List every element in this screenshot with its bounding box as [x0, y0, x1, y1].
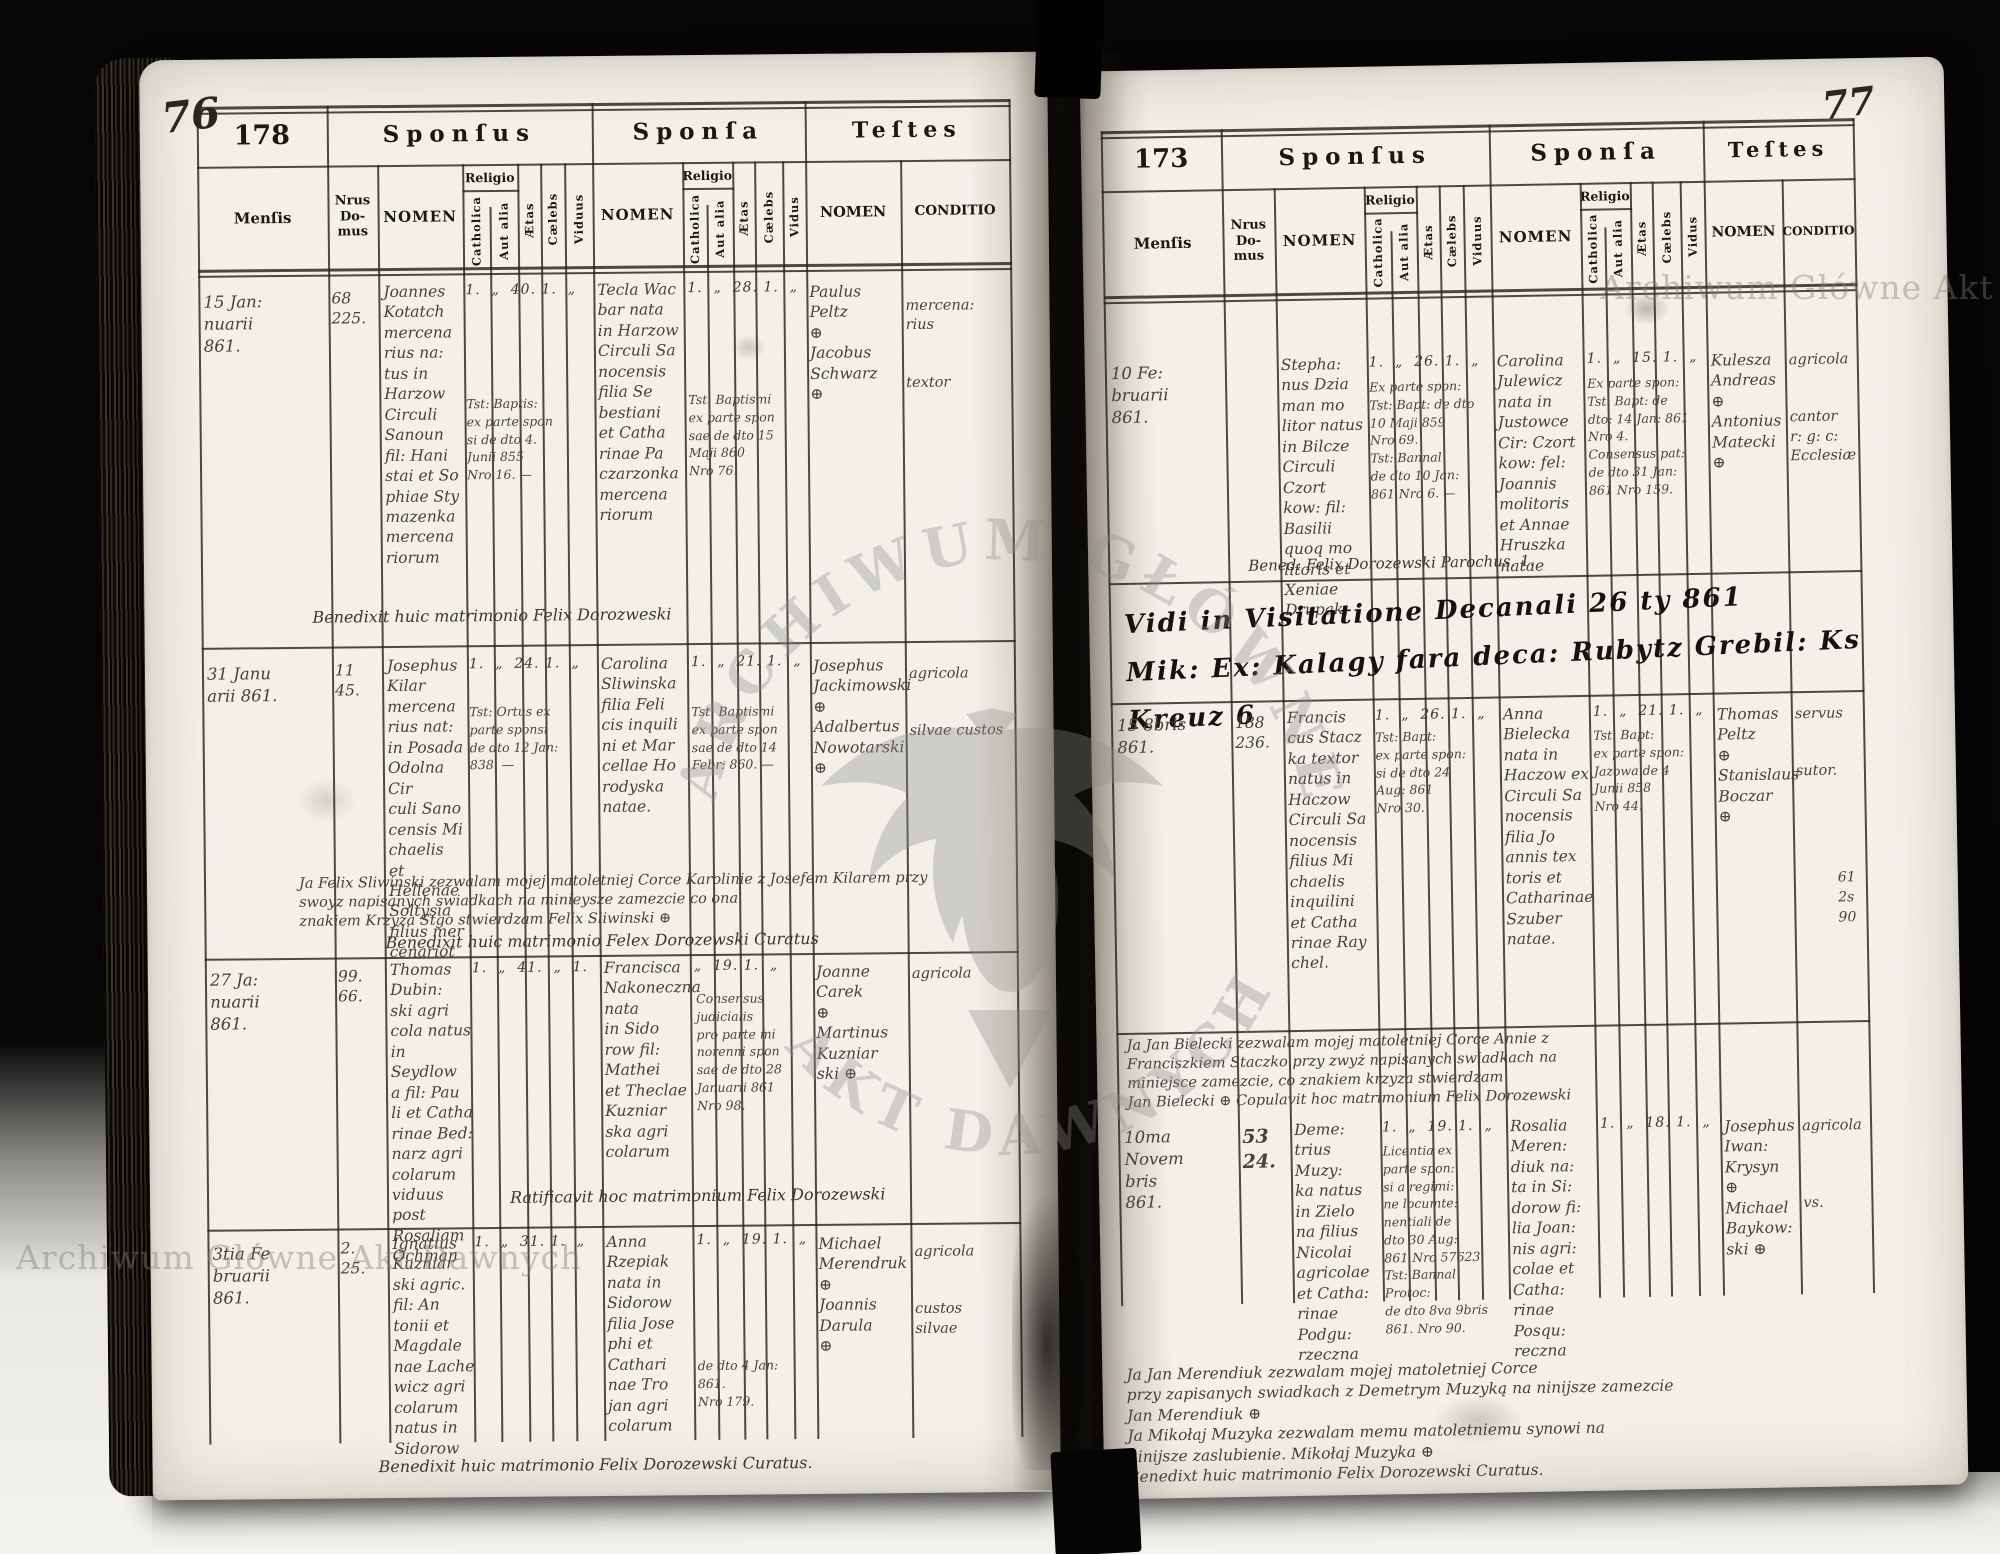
entry-mensis: 27 Ja: nuarii 861.: [210, 969, 333, 1035]
column-header-mensis: Menſis: [197, 166, 328, 270]
bride-documents-note: Tst: Bapt: ex parte spon: Jazowa de 4 Ju…: [1593, 725, 1713, 816]
column-header-catholica-sponsus: Catholica: [1365, 218, 1390, 286]
svg-text:AKT DAWNYCH: AKT DAWNYCH: [773, 957, 1288, 1170]
column-header-catholica-sponsus: Catholica: [463, 197, 489, 265]
column-header-nomen-sponsa: NOMEN: [1490, 183, 1582, 290]
witnesses-conditio: agricola vs.: [1802, 1115, 1904, 1212]
column-header-sponsa: Sponſa: [1489, 121, 1704, 185]
archive-seal-watermark: ARCHIWUM GŁÓWNE AKT DAWNYCH: [620, 470, 1400, 1270]
paper-stain: [296, 778, 356, 823]
bride-name: Rosalia Meren: diuk na: ta in Si: dorow …: [1510, 1115, 1600, 1362]
groom-religion-age-status: 1. „ 24. 1. „: [469, 654, 597, 674]
column-header-nrus-domus: Nrus Do- mus: [327, 165, 378, 268]
column-header-sponsus: Sponſus: [327, 103, 593, 166]
column-header-sponsus: Sponſus: [1221, 125, 1490, 190]
column-header-nomen-testes: NOMEN: [805, 160, 901, 264]
witnesses-conditio: servus sutor.: [1795, 704, 1896, 782]
column-header-aut-alia-sponsa: Aut alia: [707, 195, 732, 263]
margin-figures: 61 2s 90: [1838, 868, 1879, 928]
groom-religion-age-status: 1. „ 40. 1. „: [465, 280, 593, 300]
scanned-register-spread: 76: [0, 0, 2000, 1554]
column-header-caelebs-sponsus: Cælebs: [541, 174, 564, 264]
groom-name: Thomas Dubin: ski agri cola natus in Sey…: [390, 959, 475, 1267]
bride-name: Carolina Julewicz nata in Justowce Cir: …: [1497, 350, 1587, 576]
witnesses-names: Paulus Peltz ⊕ Jacobus Schwarz ⊕: [809, 281, 902, 405]
bride-religion-age-status: 1. „ 21. 1. „: [1593, 701, 1711, 722]
groom-religion-age-status: 1. „ 41. „ 1.: [472, 958, 600, 978]
column-header-aut-alia-sponsus: Aut alia: [490, 197, 517, 265]
witnesses-names: Kulesza Andreas ⊕ Antonius Matecki ⊕: [1711, 349, 1787, 473]
groom-name: Joannes Kotatch mercena rius na: tus in …: [383, 281, 468, 568]
bride-religion-age-status: 1. „ 28. 1. „: [687, 278, 805, 298]
table-grid-left: [139, 52, 1047, 61]
groom-documents-note: Licentia ex parte spon: si a regimi: ne …: [1382, 1140, 1507, 1337]
bride-documents-note: de dto 4 Jan: 861. Nro 179.: [698, 1356, 819, 1410]
archive-text-watermark: Archiwum Główne Akt Dawnych: [1600, 268, 2000, 307]
column-header-aut-alia-sponsus: Aut alia: [1391, 218, 1416, 286]
entry-house-number: 68 225.: [331, 288, 377, 329]
eagle-emblem: [821, 708, 1163, 1088]
form-number: 178: [197, 106, 328, 167]
column-header-testes: Teſtes: [1703, 118, 1854, 181]
groom-religion-age-status: 1. „ 19. 1. „: [1382, 1116, 1504, 1137]
column-header-aetas-sponsus: Ætas: [1417, 196, 1440, 286]
bookmark-ribbon-bottom: [1050, 1448, 1141, 1554]
groom-documents-note: Tst: Baptis: ex parte spon si de dto 4. …: [466, 394, 593, 484]
bride-documents-note: Ex parte spon: Tst: Bapt: de dto: 14 Jan…: [1587, 373, 1707, 499]
bride-name: Anna Bielecka nata in Haczow ex Circuli …: [1503, 703, 1593, 950]
column-header-caelebs-sponsa: Cælebs: [755, 172, 782, 262]
column-header-conditio: CONDITIO: [900, 159, 1010, 263]
column-header-religio-sponsus: Religio: [462, 166, 517, 189]
bride-religion-age-status: 1. „ 18. 1. „: [1600, 1113, 1718, 1134]
seal-bottom-text: AKT DAWNYCH: [773, 957, 1288, 1170]
witnesses-names: Josephus Iwan: Krysyn ⊕ Michael Baykow: …: [1724, 1115, 1800, 1259]
entry-house-number: [1229, 360, 1275, 361]
column-header-vidus-sponsa: Vidus: [783, 172, 805, 262]
bride-religion-age-status: 1. „ 15. 1. „: [1587, 348, 1705, 369]
witnesses-conditio: mercena: rius textor: [905, 296, 1010, 393]
column-header-religio-sponsa: Religio: [1580, 184, 1630, 207]
entry-mensis: 31 Janu arii 861.: [207, 663, 329, 708]
table-grid-right: [1080, 57, 1944, 72]
witnesses-names: Thomas Peltz ⊕ Stanislaus Boczar ⊕: [1717, 703, 1793, 827]
column-header-catholica-sponsa: Catholica: [683, 195, 706, 263]
groom-religion-age-status: 1. „ 26. 1. „: [1369, 352, 1491, 373]
column-header-aetas-sponsus: Ætas: [518, 175, 540, 265]
groom-documents-note: Tst: Ortus ex parte sponsi de dto 12 Jan…: [469, 702, 596, 774]
entry-mensis: 15 Jan: nuarii 861.: [203, 291, 326, 357]
column-header-nrus-domus: Nrus Do- mus: [1222, 188, 1276, 294]
column-header-caelebs-sponsus: Cælebs: [1440, 196, 1464, 286]
column-header-nomen-sponsus: NOMEN: [1274, 187, 1366, 294]
entry-house-number: 11 45.: [335, 660, 381, 701]
column-header-religio-sponsus: Religio: [1364, 188, 1416, 211]
column-header-nomen-sponsa: NOMEN: [592, 162, 683, 266]
column-header-viduus-sponsus: Viduus: [1464, 196, 1491, 286]
bookmark-ribbon-top: [1034, 0, 1103, 99]
bride-documents-note: Tst: Baptismi ex parte spon sae de dto 1…: [688, 390, 807, 480]
column-header-sponsa: Sponſa: [592, 101, 806, 163]
witnesses-conditio: agricola cantor r: g: c: Ecclesiæ: [1789, 349, 1901, 466]
column-header-viduus-sponsus: Viduus: [565, 174, 592, 264]
column-header-aetas-sponsa: Ætas: [733, 173, 754, 263]
entry-house-number: 99. 66.: [338, 966, 384, 1007]
paper-stain: [732, 334, 766, 360]
archive-text-watermark: Archiwum Główne Akt Dawnych: [16, 1238, 582, 1277]
column-header-testes: Teſtes: [805, 99, 1010, 161]
column-header-religio-sponsa: Religio: [682, 164, 732, 186]
column-header-nomen-sponsus: NOMEN: [377, 164, 463, 268]
